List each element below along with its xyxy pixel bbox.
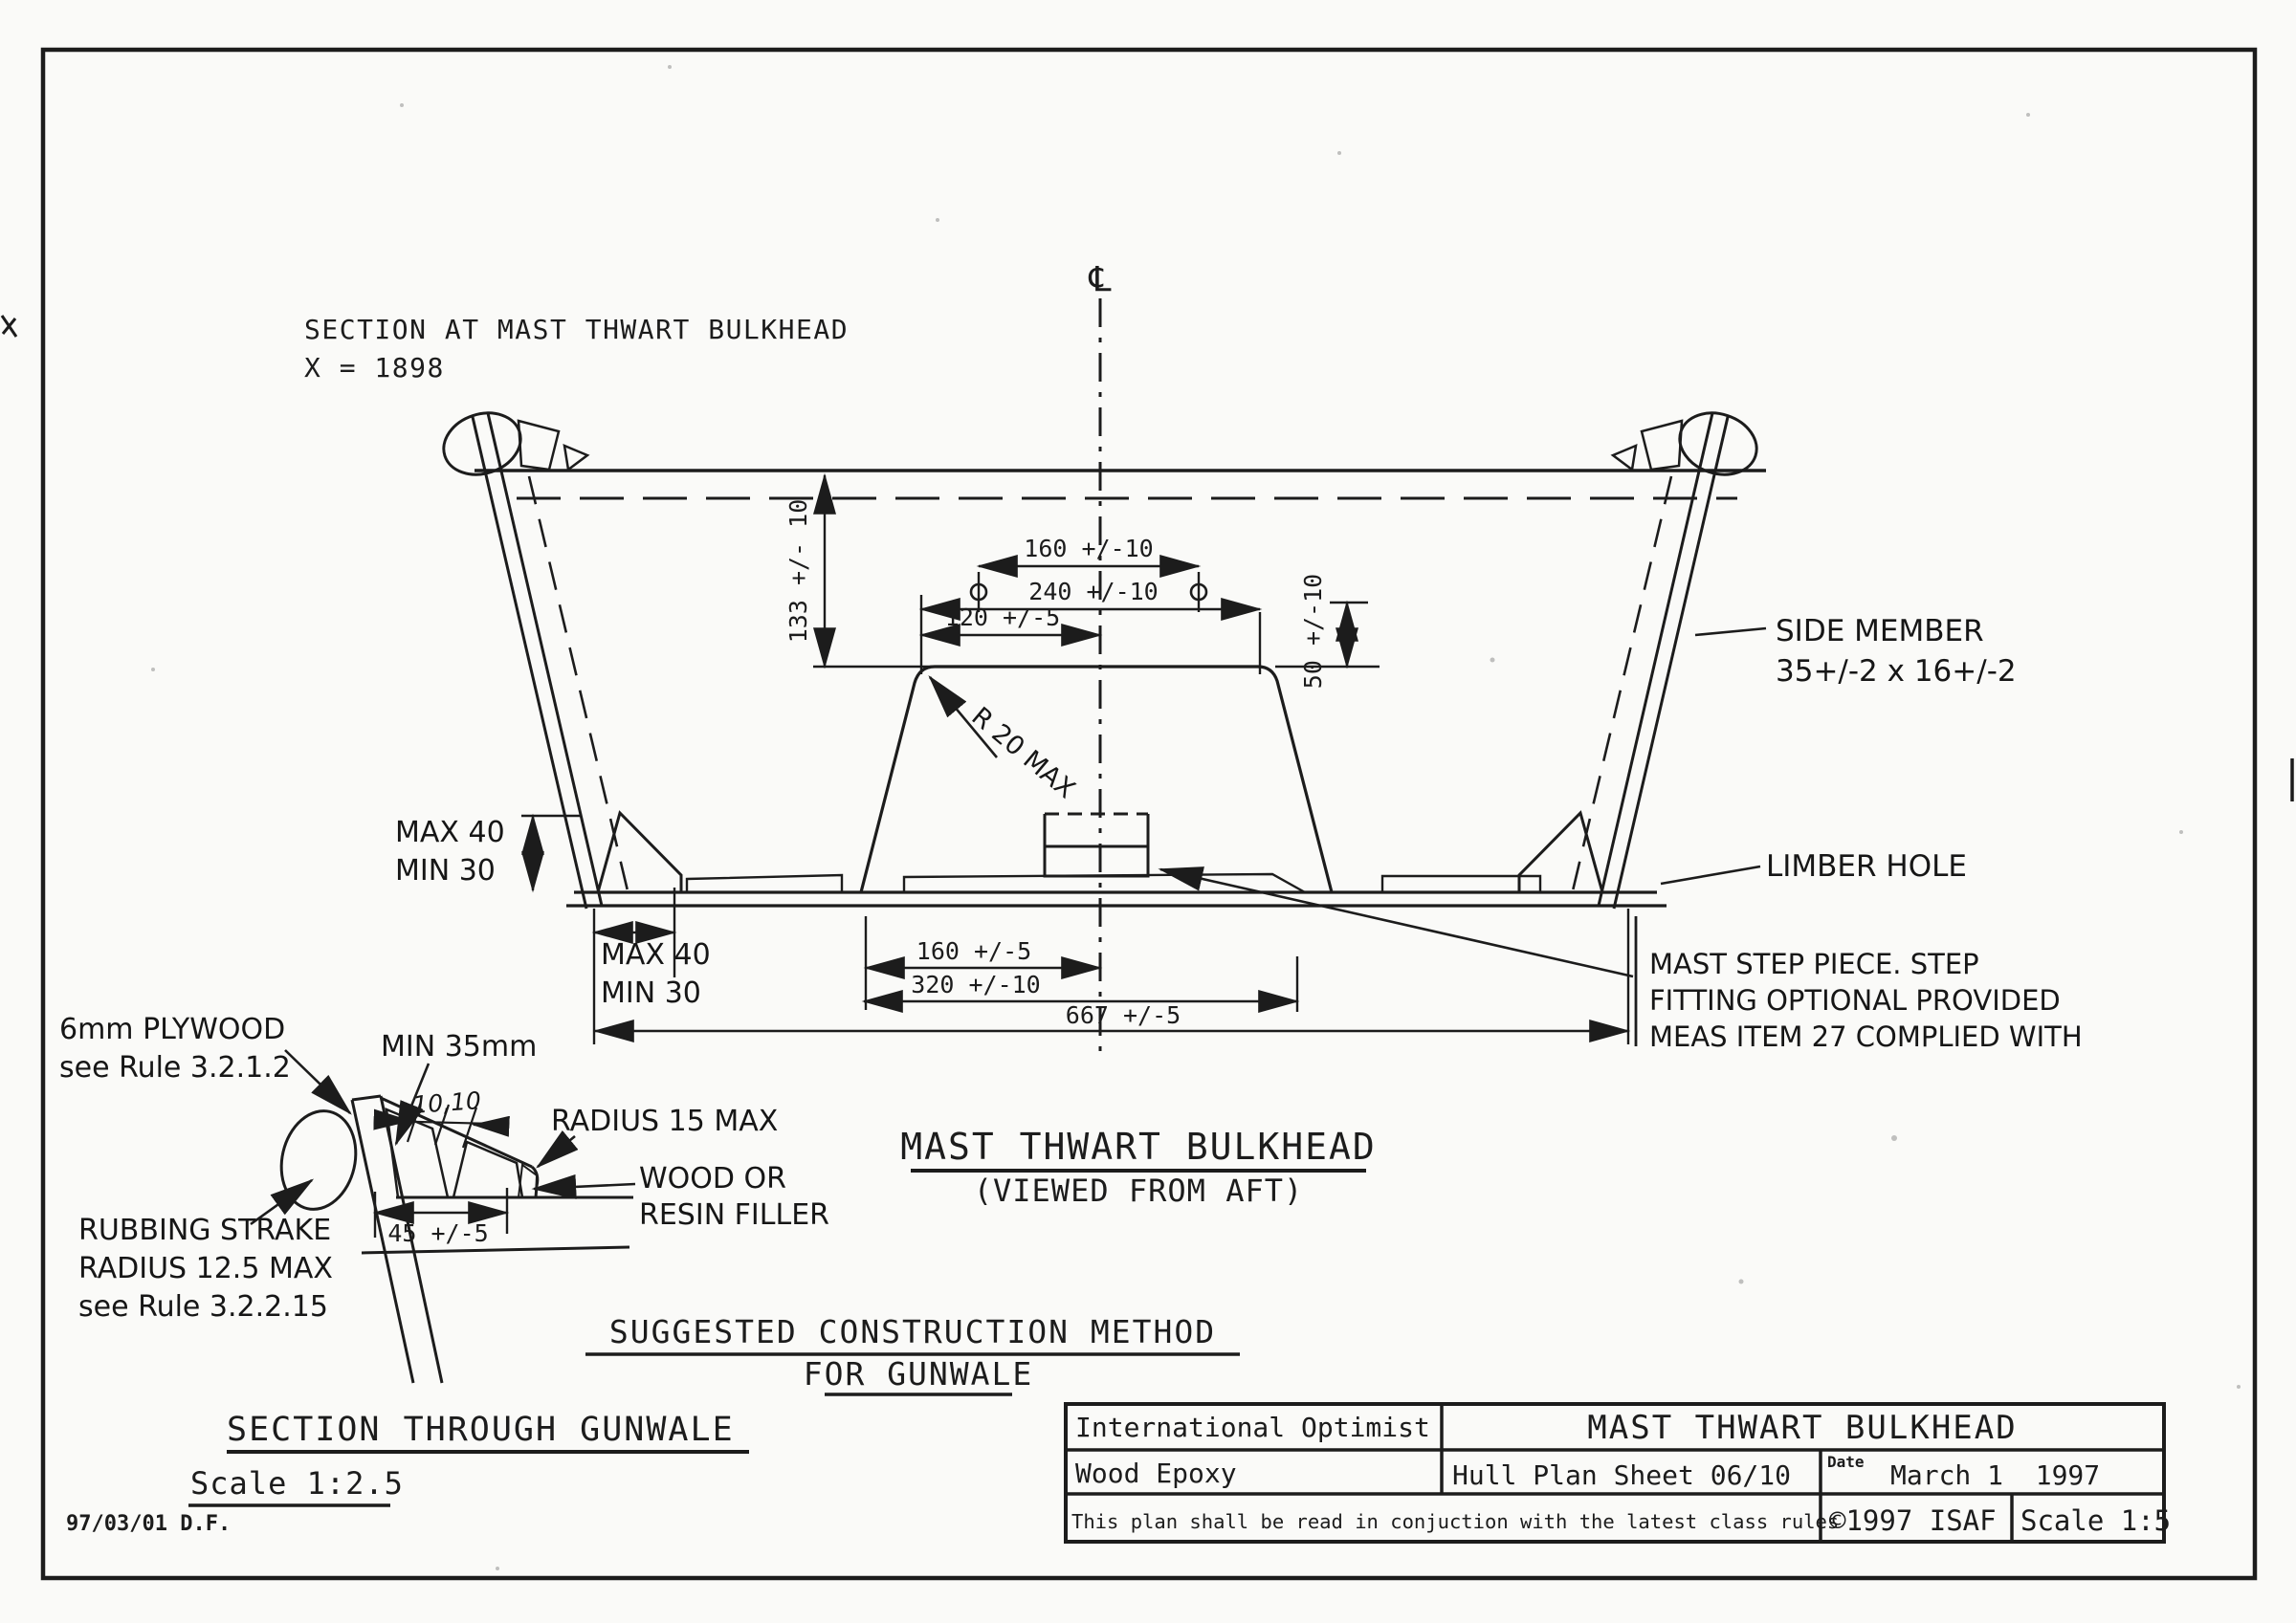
gunwale-section-title: SECTION THROUGH GUNWALE — [227, 1411, 735, 1449]
knee-max-label-1: MAX 40 — [395, 816, 505, 849]
bottom-doubler-left — [687, 875, 842, 892]
dim-r20: R 20 MAX — [966, 702, 1081, 805]
centerline: ℄ — [1088, 260, 1111, 1060]
side-member-callout: SIDE MEMBER 35+/-2 x 16+/-2 — [1695, 614, 2017, 689]
title-block-date-label: Date — [1827, 1453, 1865, 1471]
plywood-callout: 6mm PLYWOOD see Rule 3.2.1.2 — [59, 1013, 350, 1113]
title-block: International Optimist MAST THWART BULKH… — [1066, 1404, 2171, 1542]
edge-mark — [2, 316, 16, 337]
mast-step-note-3: MEAS ITEM 27 COMPLIED WITH — [1649, 1020, 2083, 1053]
radius15-callout: RADIUS 15 MAX — [538, 1105, 778, 1167]
mast-step-callout: MAST STEP PIECE. STEP FITTING OPTIONAL P… — [1160, 869, 2083, 1053]
upper-dimensions: 160 +/-10 240 +/-10 120 +/-5 133 +/- 10 … — [784, 475, 1380, 804]
title-block-sheet-number: Hull Plan Sheet 06/10 — [1452, 1459, 1791, 1491]
bottom-dimensions: 160 +/-5 320 +/-10 667 +/-5 — [595, 909, 1628, 1044]
dim-133: 133 +/- 10 — [784, 499, 812, 644]
dim-667: 667 +/-5 — [1066, 1001, 1181, 1029]
dim-10-10: 10,10 — [411, 1086, 481, 1119]
dim-45: 45 +/-5 — [387, 1219, 488, 1247]
knee-min-label-2: MIN 30 — [601, 976, 701, 1010]
filler-label-1: WOOD OR — [639, 1162, 786, 1195]
section-header: SECTION AT MAST THWART BULKHEAD X = 1898 — [304, 314, 849, 384]
radius15-label: RADIUS 15 MAX — [551, 1105, 778, 1138]
dim-160-bottom: 160 +/-5 — [916, 937, 1031, 965]
min35-callout: MIN 35mm — [381, 1030, 537, 1144]
bottom-plank — [566, 892, 1667, 906]
left-knee — [598, 813, 681, 892]
title-block-material: Wood Epoxy — [1075, 1458, 1237, 1489]
bulkhead-outline — [861, 667, 1332, 892]
mast-step-piece — [1045, 814, 1148, 876]
filler-label-2: RESIN FILLER — [639, 1198, 829, 1232]
detail-gunwale-wedge-2 — [453, 1142, 522, 1197]
plywood-label-1: 6mm PLYWOOD — [59, 1013, 285, 1046]
gunwale-scale-label: Scale 1:2.5 — [190, 1465, 404, 1502]
dim-120: 120 +/-5 — [945, 603, 1060, 631]
rubbing-label-3: see Rule 3.2.2.15 — [78, 1290, 328, 1324]
section-x-value: X = 1898 — [304, 352, 445, 384]
construction-heading: SUGGESTED CONSTRUCTION METHOD FOR GUNWAL… — [585, 1313, 1240, 1394]
dim-320: 320 +/-10 — [911, 971, 1040, 998]
limber-hole-callout: LIMBER HOLE — [1661, 849, 1967, 884]
detail-deck-line-2 — [362, 1247, 629, 1253]
technical-drawing: SECTION AT MAST THWART BULKHEAD X = 1898… — [0, 0, 2296, 1623]
construction-title-2: FOR GUNWALE — [804, 1355, 1034, 1393]
title-block-note: This plan shall be read in conjuction wi… — [1071, 1510, 1839, 1533]
plan-sheet: SECTION AT MAST THWART BULKHEAD X = 1898… — [0, 0, 2296, 1623]
mast-step-note-2: FITTING OPTIONAL PROVIDED — [1649, 984, 2061, 1017]
centerline-symbol: ℄ — [1088, 260, 1111, 299]
revision-note: 97/03/01 D.F. — [66, 1512, 231, 1536]
mast-step-note-1: MAST STEP PIECE. STEP — [1649, 948, 1979, 980]
title-block-copyright: ©1997 ISAF — [1829, 1504, 1997, 1537]
bottom-doubler-right — [1382, 876, 1540, 892]
title-block-scale: Scale 1:5 — [2020, 1504, 2171, 1537]
title-block-title: MAST THWART BULKHEAD — [1587, 1409, 2017, 1447]
section-title: SECTION AT MAST THWART BULKHEAD — [304, 314, 849, 345]
view-heading: MAST THWART BULKHEAD (VIEWED FROM AFT) — [900, 1126, 1377, 1209]
side-member-label-1: SIDE MEMBER — [1776, 614, 1984, 648]
min35-label: MIN 35mm — [381, 1030, 537, 1064]
title-block-class: International Optimist — [1075, 1412, 1430, 1443]
rubbing-label-1: RUBBING STRAKE — [78, 1214, 331, 1247]
view-subtitle: (VIEWED FROM AFT) — [974, 1173, 1304, 1209]
gunwale-section-heading: SECTION THROUGH GUNWALE Scale 1:2.5 97/0… — [66, 1411, 749, 1536]
knee-max-label-2: MAX 40 — [601, 938, 711, 972]
knee-min-label-1: MIN 30 — [395, 854, 496, 888]
dim-240: 240 +/-10 — [1028, 578, 1158, 605]
title-block-date: March 1 1997 — [1890, 1459, 2100, 1491]
dim-50: 50 +/-10 — [1299, 574, 1327, 689]
rubbing-label-2: RADIUS 12.5 MAX — [78, 1252, 333, 1285]
limber-hole-label: LIMBER HOLE — [1766, 849, 1967, 884]
dim-160-top: 160 +/-10 — [1024, 535, 1153, 562]
view-title: MAST THWART BULKHEAD — [900, 1126, 1377, 1168]
plywood-label-2: see Rule 3.2.1.2 — [59, 1051, 291, 1085]
knee-dimensions: MAX 40 MIN 30 MAX 40 MIN 30 — [395, 816, 711, 1044]
construction-title-1: SUGGESTED CONSTRUCTION METHOD — [609, 1313, 1216, 1350]
right-side-plank — [1570, 413, 1728, 909]
right-knee — [1519, 813, 1602, 892]
side-member-label-2: 35+/-2 x 16+/-2 — [1776, 654, 2017, 689]
